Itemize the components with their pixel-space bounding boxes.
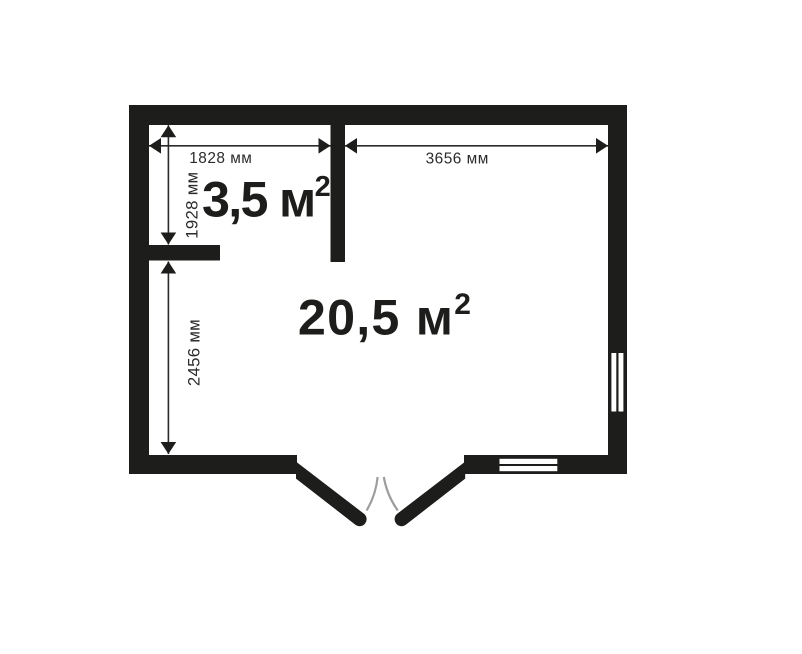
svg-text:1928 мм: 1928 мм <box>182 172 201 239</box>
svg-text:3656 мм: 3656 мм <box>426 150 489 167</box>
svg-text:3,5 м2: 3,5 м2 <box>202 171 330 228</box>
svg-text:20,5 м2: 20,5 м2 <box>298 288 472 346</box>
svg-text:1828 мм: 1828 мм <box>189 150 252 167</box>
svg-text:2456 мм: 2456 мм <box>185 319 204 386</box>
